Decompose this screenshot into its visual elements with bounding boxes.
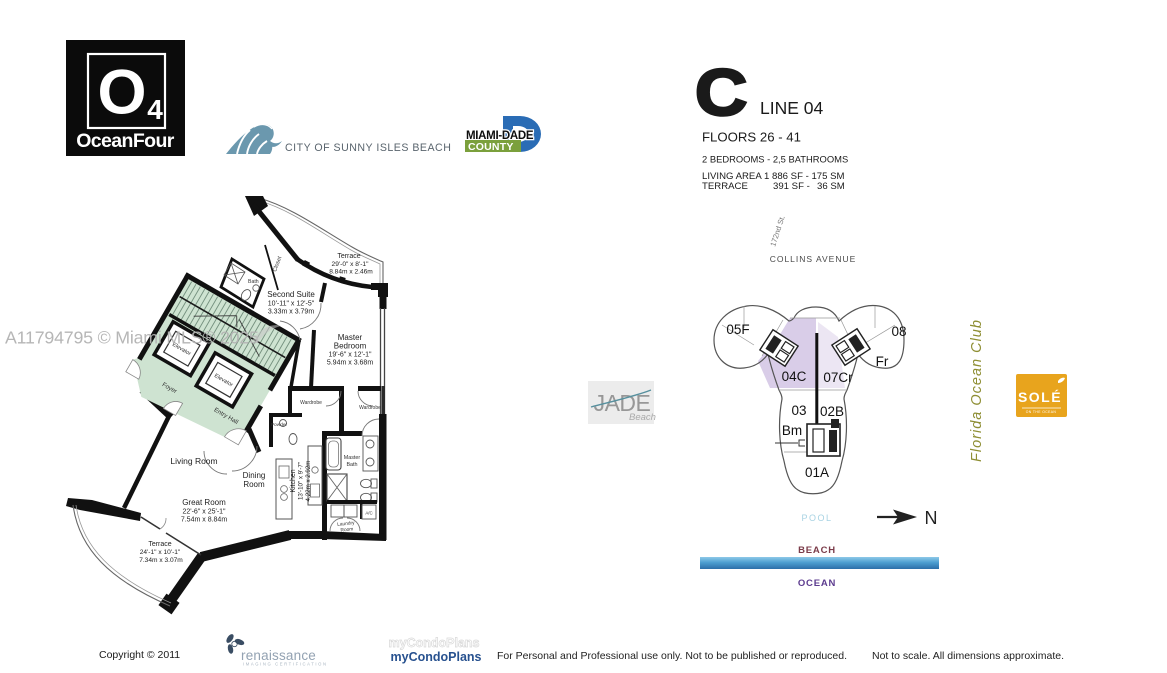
svg-text:02B: 02B <box>820 404 844 419</box>
svg-text:22'-6" x 25'-1": 22'-6" x 25'-1" <box>182 509 226 516</box>
svg-text:36 SM: 36 SM <box>817 181 845 192</box>
svg-text:5.94m x 3.68m: 5.94m x 3.68m <box>327 360 373 367</box>
svg-text:Terrace: Terrace <box>337 253 360 260</box>
svg-text:Wardrobe: Wardrobe <box>359 405 381 411</box>
svg-text:Florida Ocean Club: Florida Ocean Club <box>969 319 985 462</box>
svg-text:OCEAN: OCEAN <box>798 578 836 589</box>
svg-text:Terrace: Terrace <box>148 541 171 548</box>
svg-text:Beach: Beach <box>629 412 656 423</box>
svg-text:13'-10" x 9'-7": 13'-10" x 9'-7" <box>298 462 305 500</box>
svg-text:04C: 04C <box>782 369 807 384</box>
svg-text:C: C <box>695 55 747 129</box>
svg-text:10'-11" x 12'-5": 10'-11" x 12'-5" <box>268 301 315 308</box>
svg-text:Dining: Dining <box>243 471 266 480</box>
svg-text:Bath: Bath <box>346 462 357 468</box>
svg-text:A11794795 © Miami MLS® 2025: A11794795 © Miami MLS® 2025 <box>5 328 259 348</box>
svg-text:08: 08 <box>891 324 906 339</box>
svg-text:Bedroom: Bedroom <box>334 342 367 351</box>
svg-text:05F: 05F <box>726 322 749 337</box>
svg-text:O: O <box>97 58 146 128</box>
svg-text:391 SF -: 391 SF - <box>773 181 810 192</box>
svg-text:Kitchen: Kitchen <box>290 469 297 492</box>
svg-text:19'-6" x 12'-1": 19'-6" x 12'-1" <box>328 352 372 359</box>
svg-text:OceanFour: OceanFour <box>76 130 175 152</box>
svg-text:For Personal and Professional: For Personal and Professional use only. … <box>497 650 847 662</box>
svg-text:4: 4 <box>147 94 163 125</box>
svg-text:3.33m x 3.79m: 3.33m x 3.79m <box>268 309 314 316</box>
svg-text:4.22m x 2.92m: 4.22m x 2.92m <box>305 461 312 502</box>
svg-text:CITY OF SUNNY ISLES BEACH: CITY OF SUNNY ISLES BEACH <box>285 142 451 154</box>
svg-text:myCondoPlans: myCondoPlans <box>389 636 480 650</box>
svg-text:8.84m x 2.46m: 8.84m x 2.46m <box>329 269 373 276</box>
svg-text:Master: Master <box>344 455 361 461</box>
svg-text:COLLINS AVENUE: COLLINS AVENUE <box>770 254 857 264</box>
svg-text:Not to scale. All dimensions: Not to scale. All dimensions approximate… <box>872 650 1064 662</box>
svg-text:Great Room: Great Room <box>182 498 226 507</box>
svg-text:N: N <box>925 508 938 528</box>
svg-text:Wardrobe: Wardrobe <box>300 400 322 406</box>
svg-text:COUNTY: COUNTY <box>468 141 514 153</box>
svg-text:07Cr: 07Cr <box>823 370 853 385</box>
svg-text:Second Suite: Second Suite <box>267 290 315 299</box>
svg-text:7.54m x 8.84m: 7.54m x 8.84m <box>181 517 227 524</box>
svg-text:Copyright © 2011: Copyright © 2011 <box>99 649 180 661</box>
svg-text:LINE 04: LINE 04 <box>760 98 823 118</box>
svg-text:Room: Room <box>243 480 265 489</box>
svg-text:Fr: Fr <box>876 354 889 369</box>
svg-text:01A: 01A <box>805 465 829 480</box>
svg-text:A/C: A/C <box>365 511 372 516</box>
svg-text:BEACH: BEACH <box>798 545 836 556</box>
svg-text:ON THE OCEAN: ON THE OCEAN <box>1026 410 1057 414</box>
svg-text:Bath: Bath <box>248 279 259 285</box>
svg-text:7.34m x 3.07m: 7.34m x 3.07m <box>139 557 183 564</box>
svg-text:TERRACE: TERRACE <box>702 181 748 192</box>
svg-text:SOLÉ: SOLÉ <box>1018 389 1062 405</box>
svg-text:POOL: POOL <box>801 513 832 523</box>
svg-text:IMAGING CERTIFICATION: IMAGING CERTIFICATION <box>243 662 328 667</box>
svg-text:Bm: Bm <box>782 423 802 438</box>
svg-text:myCondoPlans: myCondoPlans <box>391 650 482 664</box>
svg-text:FLOORS 26 - 41: FLOORS 26 - 41 <box>702 130 801 145</box>
svg-text:24'-1" x 10'-1": 24'-1" x 10'-1" <box>140 549 181 556</box>
svg-text:Powder: Powder <box>271 422 288 428</box>
svg-text:03: 03 <box>791 403 806 418</box>
svg-text:2 BEDROOMS - 2,5 BATHROOMS: 2 BEDROOMS - 2,5 BATHROOMS <box>702 154 848 165</box>
svg-text:Living Room: Living Room <box>170 456 217 466</box>
svg-text:29'-0" x 8'-1": 29'-0" x 8'-1" <box>332 261 370 268</box>
